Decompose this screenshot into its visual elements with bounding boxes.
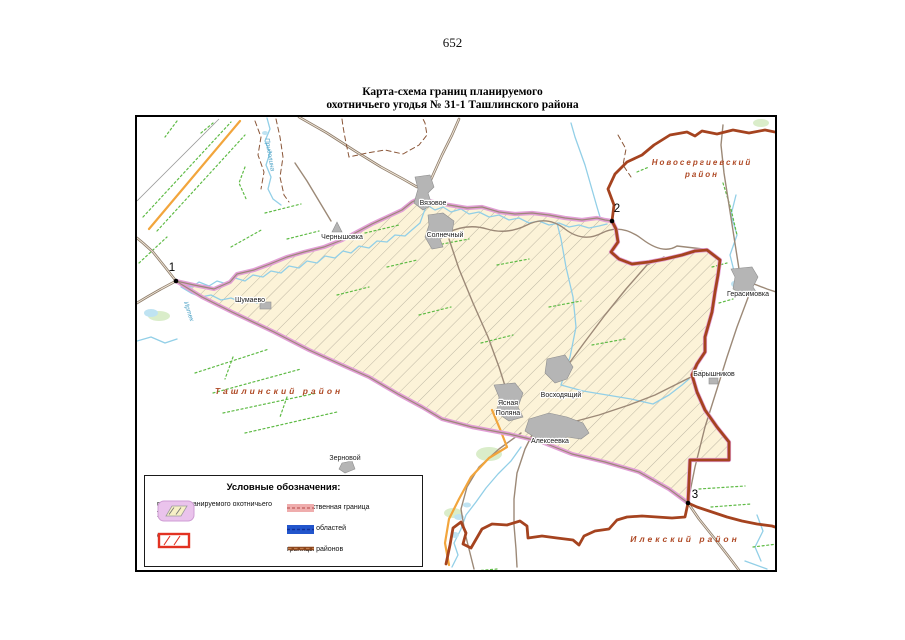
map-legend: Условные обозначения: граница планируемо… — [144, 475, 423, 567]
page-number: 652 — [0, 35, 905, 51]
district-label-tashlinsky: Ташлинский район — [215, 386, 343, 396]
map-title-line1: Карта-схема границ планируемого — [0, 86, 905, 99]
state-border-swatch-icon — [287, 503, 315, 513]
district-label-novosergievsky-2: район — [684, 170, 719, 179]
settlement-label: Чернышовка — [321, 234, 363, 241]
settlement-label: Вязовое — [420, 200, 447, 207]
hunting-area — [176, 198, 729, 503]
district-label-ileksky: Илекский район — [630, 534, 740, 544]
river-label: Иртек — [182, 301, 195, 323]
legend-item-hunting-boundary: граница планируемого охотничьего угодья — [157, 500, 285, 518]
boundary-point-label-2: 2 — [614, 203, 620, 215]
settlement-label: Зерновой — [329, 454, 360, 462]
region-border-swatch-icon — [287, 524, 315, 535]
legend-item-district-border: границы районов — [287, 545, 343, 554]
map-title: Карта-схема границ планируемого охотничь… — [0, 86, 905, 112]
legend-title: Условные обозначения: — [145, 482, 422, 493]
settlement-label: Восходящий — [541, 391, 582, 399]
boundary-point-label-1: 1 — [169, 262, 175, 274]
river-label: Придолина — [263, 137, 277, 172]
district-border-swatch-icon — [287, 545, 315, 552]
legend-item-oopt: ООПТ — [157, 532, 177, 541]
settlement-label: Герасимовка — [727, 291, 769, 298]
boundary-point-label-3: 3 — [692, 489, 698, 501]
hunting-boundary-swatch-icon — [157, 500, 195, 522]
map-title-line2: охотничьего угодья № 31-1 Ташлинского ра… — [0, 99, 905, 112]
legend-item-region-border: границы областей — [287, 524, 346, 533]
settlement-label: Барышников — [693, 371, 735, 378]
map-frame: Вязовое Чернышовка Солнечный Шумаево Гер… — [135, 115, 777, 572]
oopt-swatch-icon — [157, 532, 195, 549]
settlement-label: Шумаево — [235, 297, 265, 304]
legend-item-state-border: государственная граница — [287, 503, 370, 512]
settlement-label: Алексеевка — [531, 438, 569, 445]
district-label-novosergievsky: Новосергиевский — [652, 158, 752, 167]
settlement-label: Поляна — [496, 410, 521, 417]
settlement-label: Ясная — [498, 400, 518, 407]
settlement-label: Солнечный — [427, 231, 464, 239]
document-page: { "page": { "number": "652" }, "title": … — [0, 0, 905, 640]
